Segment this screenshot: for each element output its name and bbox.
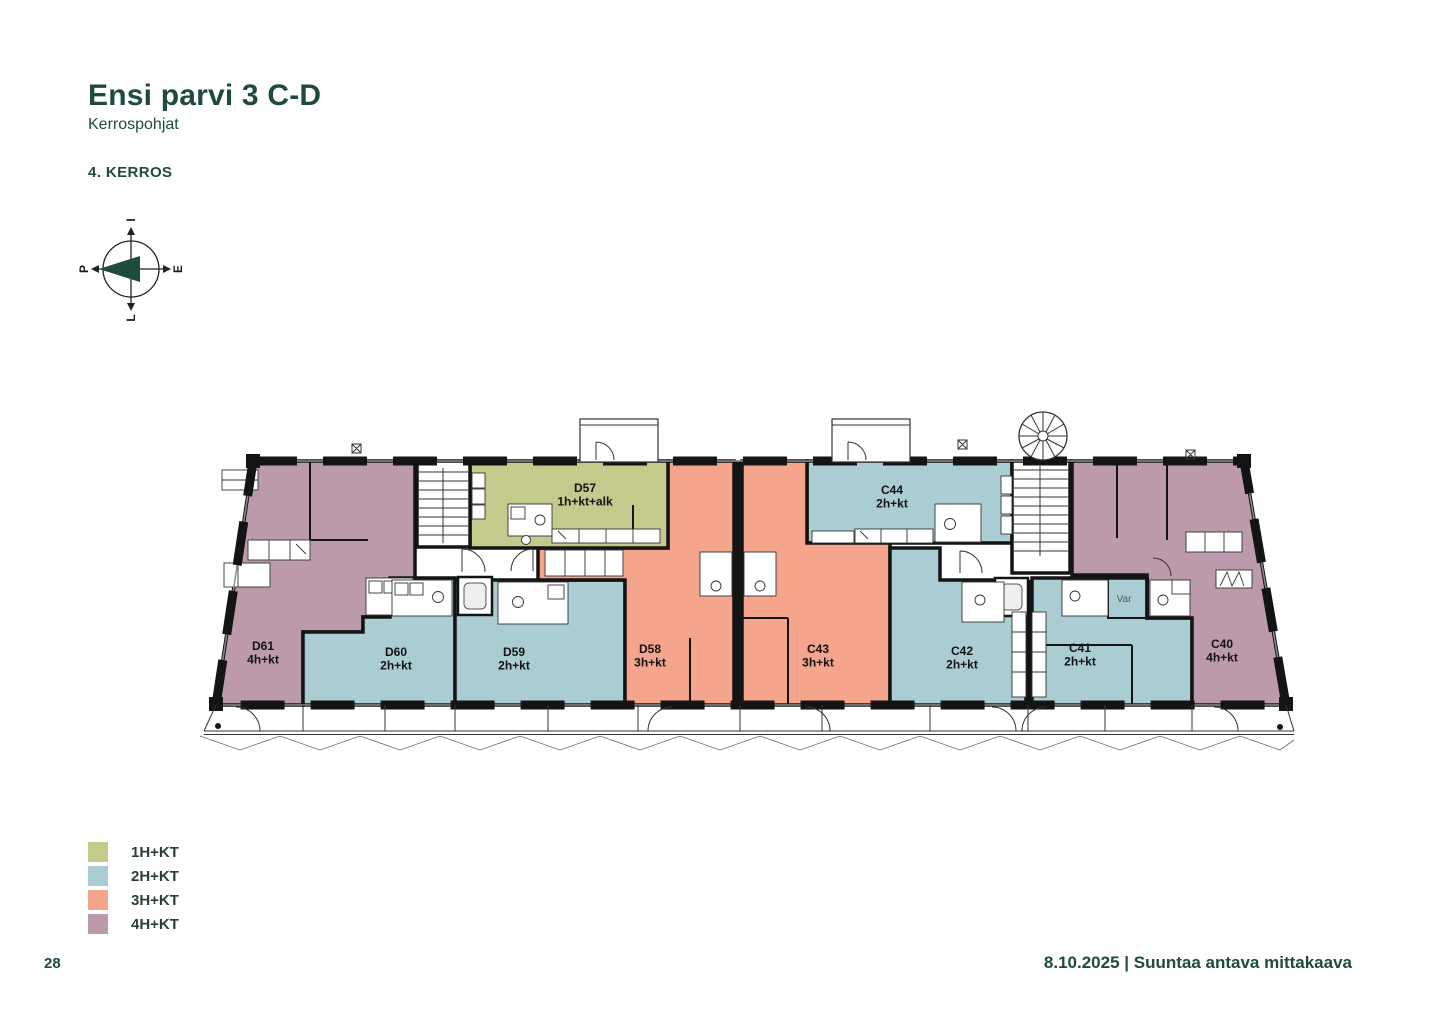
compass-arrowhead-left [91, 265, 99, 273]
legend-item: 3H+KT [88, 890, 179, 910]
column-dot [1277, 724, 1283, 730]
balcony-doors [236, 707, 1238, 731]
spiral-stair-icon [1019, 412, 1067, 460]
storage-room-label: Var [1117, 594, 1132, 605]
canopy-zigzag [200, 736, 1294, 750]
floor-plan: P I E L [0, 0, 1440, 1018]
roof-vent-icons [352, 440, 1195, 459]
page: { "page": { "title": "Ensi parvi 3 C-D",… [0, 0, 1440, 1018]
compass: P I E L [77, 218, 185, 321]
legend-label: 1H+KT [131, 844, 179, 861]
compass-west-label: L [124, 314, 138, 321]
stairwell-c [1012, 461, 1070, 573]
apartment-C42 [890, 548, 1026, 705]
compass-arrowhead-bottom [127, 303, 135, 311]
legend-label: 4H+KT [131, 916, 179, 933]
stairwell-d [417, 461, 470, 547]
page-number: 28 [44, 955, 61, 972]
compass-east-label: I [124, 218, 138, 221]
legend-swatch [88, 914, 108, 934]
legend-label: 3H+KT [131, 892, 179, 909]
balconies [200, 705, 1294, 750]
legend-label: 2H+KT [131, 868, 179, 885]
compass-arrowhead-top [127, 227, 135, 235]
footer-note: 8.10.2025 | Suuntaa antava mittakaava [1044, 953, 1352, 973]
entrance-bay-1 [580, 419, 658, 462]
elevator-d [458, 577, 492, 615]
legend-swatch [88, 890, 108, 910]
compass-north-label: P [77, 265, 91, 273]
column-dot [215, 723, 221, 729]
legend: 1H+KT2H+KT3H+KT4H+KT [88, 842, 179, 938]
legend-swatch [88, 866, 108, 886]
legend-item: 4H+KT [88, 914, 179, 934]
legend-item: 2H+KT [88, 866, 179, 886]
legend-item: 1H+KT [88, 842, 179, 862]
legend-swatch [88, 842, 108, 862]
compass-south-label: E [171, 265, 185, 273]
compass-arrowhead-right [163, 265, 171, 273]
entrance-bay-2 [832, 419, 910, 462]
